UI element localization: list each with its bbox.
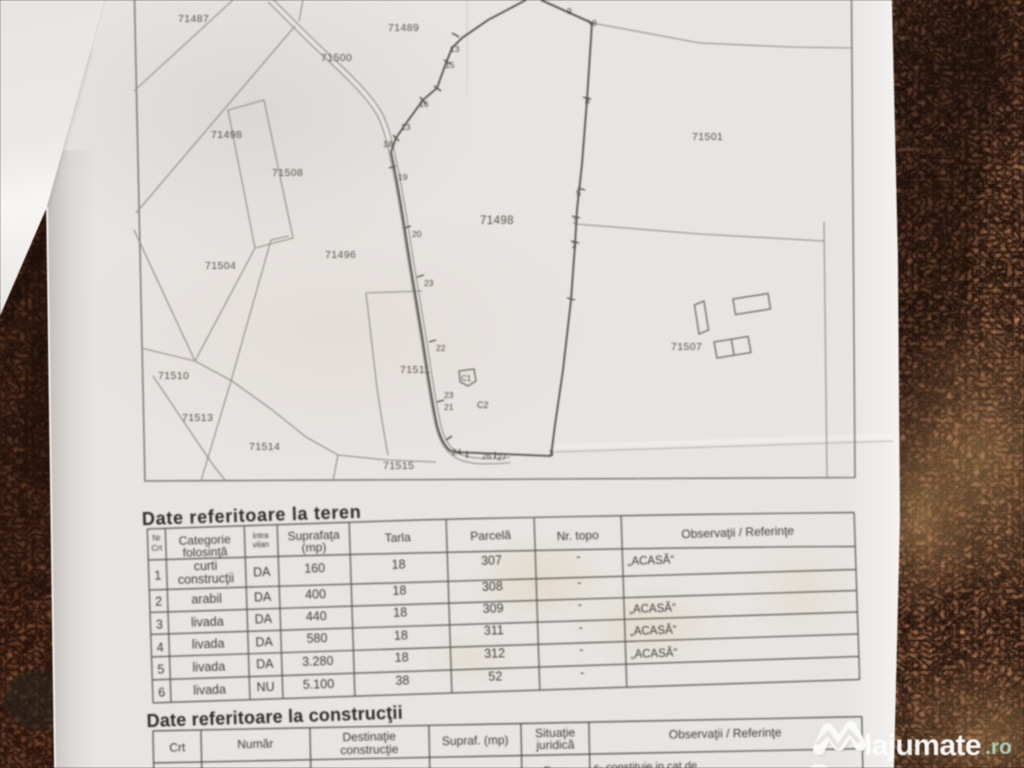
svg-text:9: 9: [567, 6, 572, 16]
svg-text:18: 18: [392, 583, 406, 597]
svg-text:construcţii: construcţii: [178, 571, 235, 587]
svg-text:DA: DA: [254, 590, 272, 605]
svg-text:19: 19: [398, 172, 408, 182]
svg-text:4: 4: [156, 641, 163, 655]
svg-text:26: 26: [482, 451, 492, 461]
svg-text:1: 1: [154, 569, 161, 583]
svg-text:580: 580: [306, 631, 327, 646]
svg-text:construcţie: construcţie: [340, 742, 399, 757]
svg-text:Crt: Crt: [151, 543, 163, 552]
svg-text:400: 400: [305, 587, 326, 602]
svg-text:24: 24: [452, 447, 462, 457]
svg-text:5: 5: [157, 663, 164, 677]
svg-text:livada: livada: [193, 682, 226, 697]
svg-text:18: 18: [394, 650, 408, 664]
svg-text:15: 15: [445, 60, 455, 70]
svg-text:71508: 71508: [272, 167, 303, 179]
svg-text:Parcelă: Parcelă: [470, 528, 511, 543]
svg-text:(mp): (mp): [301, 540, 326, 555]
svg-text:2: 2: [572, 240, 577, 250]
svg-text:312: 312: [484, 646, 505, 661]
svg-text:DA: DA: [253, 565, 271, 580]
svg-text:NU: NU: [256, 680, 275, 695]
svg-text:DA: DA: [255, 635, 273, 650]
svg-text:.ro: .ro: [985, 736, 1012, 759]
svg-text:18: 18: [391, 557, 405, 571]
svg-text:Nr. topo: Nr. topo: [556, 528, 599, 543]
svg-text:-: -: [577, 576, 582, 590]
svg-text:13: 13: [401, 122, 411, 132]
svg-text:DA: DA: [254, 612, 272, 627]
svg-text:-: -: [580, 666, 585, 680]
svg-text:-: -: [578, 621, 583, 635]
svg-text:71500: 71500: [321, 52, 352, 64]
svg-text:-: -: [576, 550, 581, 564]
svg-text:DA: DA: [256, 657, 274, 672]
svg-text:13: 13: [450, 44, 460, 54]
svg-text:3: 3: [549, 448, 554, 458]
svg-text:18: 18: [394, 628, 408, 642]
svg-text:71511: 71511: [400, 364, 430, 376]
svg-text:18: 18: [383, 139, 393, 149]
svg-text:Fara: Fara: [543, 764, 568, 768]
svg-text:„ACASĂ“: „ACASĂ“: [630, 646, 677, 661]
svg-text:71507: 71507: [671, 341, 702, 353]
svg-text:-: -: [579, 643, 584, 657]
svg-text:20: 20: [412, 229, 422, 239]
svg-text:vilan: vilan: [252, 540, 269, 550]
svg-text:71498: 71498: [211, 129, 242, 141]
svg-text:21: 21: [444, 402, 454, 412]
svg-text:3: 3: [573, 216, 578, 226]
svg-text:52: 52: [488, 669, 502, 683]
svg-text:5: 5: [576, 188, 581, 198]
svg-text:307: 307: [481, 553, 502, 568]
svg-text:3.280: 3.280: [302, 654, 334, 669]
svg-text:71514: 71514: [249, 441, 280, 453]
svg-text:Supraf. (mp): Supraf. (mp): [442, 733, 509, 748]
svg-text:Observaţii / Referinţe: Observaţii / Referinţe: [669, 725, 782, 741]
svg-text:„ACASĂ“: „ACASĂ“: [629, 602, 676, 617]
svg-text:Tarla: Tarla: [384, 530, 411, 545]
svg-text:71501: 71501: [692, 131, 723, 143]
svg-text:440: 440: [306, 609, 327, 624]
svg-text:5.100: 5.100: [303, 677, 335, 692]
svg-text:3: 3: [156, 618, 163, 632]
svg-text:C2: C2: [477, 400, 489, 410]
svg-text:311: 311: [484, 623, 504, 638]
svg-text:38: 38: [395, 673, 409, 687]
svg-text:309: 309: [482, 601, 503, 616]
svg-text:6: 6: [158, 685, 165, 699]
svg-text:Crt: Crt: [169, 740, 186, 754]
svg-text:livada: livada: [192, 659, 225, 674]
svg-text:8: 8: [592, 18, 597, 28]
svg-text:71504: 71504: [205, 260, 236, 272]
svg-text:308: 308: [482, 579, 503, 594]
svg-text:71496: 71496: [325, 249, 356, 261]
svg-text:2: 2: [155, 595, 162, 609]
svg-text:juridică: juridică: [535, 737, 575, 752]
svg-text:18: 18: [393, 605, 407, 619]
svg-text:„ACASĂ“: „ACASĂ“: [627, 554, 674, 569]
svg-text:71498: 71498: [480, 215, 514, 227]
svg-text:C1: C1: [461, 374, 472, 383]
svg-text:23: 23: [424, 278, 434, 288]
svg-text:27: 27: [497, 452, 507, 462]
svg-text:s- constituie in cat de: s- constituie in cat de: [594, 760, 698, 768]
svg-text:23: 23: [444, 390, 454, 400]
svg-text:71515: 71515: [383, 460, 414, 472]
svg-text:lajumate: lajumate: [864, 729, 981, 762]
svg-text:71489: 71489: [388, 22, 419, 34]
svg-text:arabil: arabil: [191, 592, 222, 607]
svg-text:8: 8: [585, 96, 590, 106]
svg-text:livada: livada: [192, 637, 225, 652]
svg-text:-: -: [578, 598, 583, 612]
svg-text:livada: livada: [191, 615, 224, 630]
svg-text:folosinţă: folosinţă: [182, 544, 227, 559]
svg-text:160: 160: [304, 561, 325, 576]
svg-text:71513: 71513: [182, 412, 213, 424]
svg-text:16: 16: [419, 99, 429, 109]
svg-text:„ACASĂ“: „ACASĂ“: [630, 624, 677, 639]
svg-text:71510: 71510: [158, 370, 189, 382]
svg-text:22: 22: [436, 343, 446, 353]
svg-text:Număr: Număr: [237, 737, 273, 752]
svg-text:Nr: Nr: [152, 534, 161, 543]
svg-text:71487: 71487: [178, 13, 209, 25]
